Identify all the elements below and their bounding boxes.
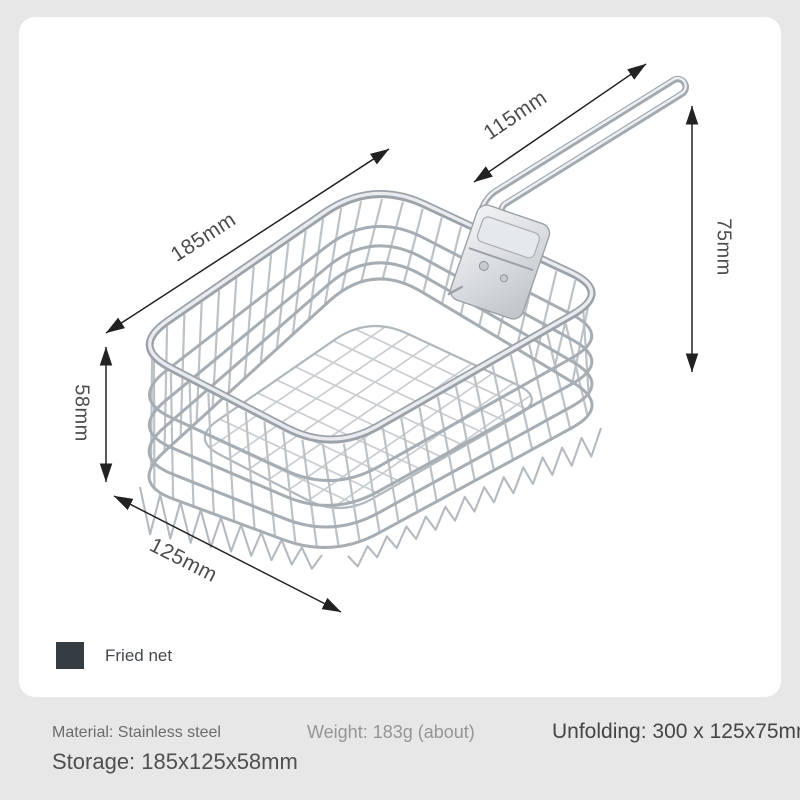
spec-storage: Storage: 185x125x58mm [52, 749, 298, 775]
spec-weight: Weight: 183g (about) [307, 722, 475, 744]
fry-basket-illustration [0, 108, 800, 728]
legend: Fried net [56, 642, 172, 669]
spec-material: Material: Stainless steel [52, 723, 221, 742]
product-figure: 185mm 115mm 75mm 58mm 125mm [0, 0, 800, 800]
spec-unfolding: Unfolding: 300 x 125x75mm [552, 719, 800, 744]
dimension-label-handle-height: 75mm [713, 218, 735, 276]
dimension-label-basket-height: 58mm [71, 384, 93, 442]
legend-label: Fried net [105, 642, 172, 669]
dimension-arrow-length [106, 149, 389, 333]
dimension-label-length: 185mm [167, 208, 240, 267]
basket-handle [448, 78, 686, 322]
page: 185mm 115mm 75mm 58mm 125mm Fried net Ma… [0, 0, 800, 800]
legend-swatch [56, 642, 84, 669]
